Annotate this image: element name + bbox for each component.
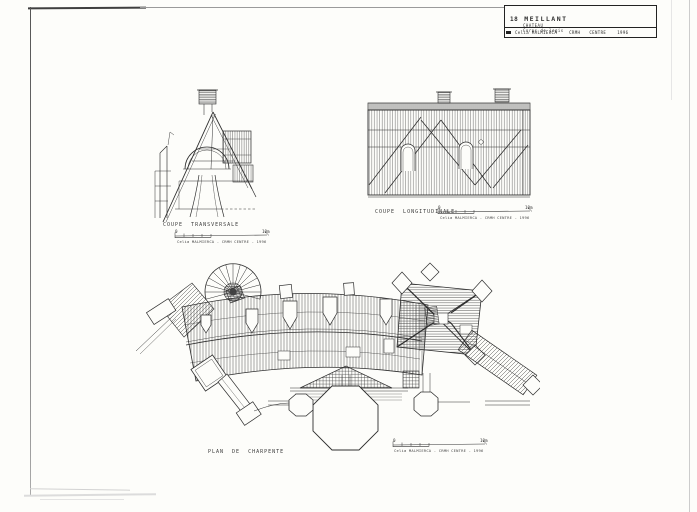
sheet-frame-left <box>30 7 31 496</box>
title-block: 18MEILLANT CHATEAU Corps de logis Celia … <box>504 5 657 38</box>
title-block-credit-row: Celia MALMIERCA CRMH CENTRE 1996 <box>505 27 656 37</box>
year: 1996 <box>617 30 628 35</box>
credit-line-plan: Celia MALMIERCA - CRMH CENTRE - 1996 <box>394 448 484 453</box>
southeast-wing <box>458 330 540 395</box>
region: CENTRE <box>589 30 606 35</box>
scale-max-label: 10m <box>525 205 533 210</box>
scale-max-label: 10m <box>480 438 488 443</box>
coupe-longitudinale-drawing <box>363 85 538 205</box>
plan-de-charpente-label: PLAN DE CHARPENTE <box>208 449 284 455</box>
scanned-drawing-sheet: 18MEILLANT CHATEAU Corps de logis Celia … <box>0 0 697 512</box>
scale-bar-line <box>438 208 532 215</box>
scale-bar-line <box>393 441 487 448</box>
title-block-main: 18MEILLANT <box>505 6 656 24</box>
coupe-transversale-drawing <box>135 85 275 240</box>
scan-edge-line <box>689 0 690 512</box>
sheet-frame-top-dark <box>28 7 146 10</box>
stamp-mark <box>506 31 511 34</box>
sheet-number: 18 <box>510 16 518 23</box>
plan-de-charpente-drawing <box>130 255 540 460</box>
scale-zero-label: 0 <box>393 438 396 443</box>
chimney <box>197 90 218 115</box>
scan-edge-line-faint <box>671 0 672 100</box>
monument-name: MEILLANT <box>524 15 567 23</box>
scale-bar-line <box>175 232 269 239</box>
author-name: Celia MALMIERCA <box>515 30 557 35</box>
scale-max-label: 10m <box>262 229 270 234</box>
credit-line-longitudinale: Celia MALMIERCA - CRMH CENTRE - 1996 <box>440 215 530 220</box>
scale-zero-label: 0 <box>175 229 178 234</box>
scan-smudge <box>24 493 156 497</box>
roof-chimneys <box>436 89 511 103</box>
ridge-batten-band <box>368 103 530 110</box>
credit-line-transversale: Celia MALMIERCA - CRMH CENTRE - 1996 <box>177 239 267 244</box>
organisation: CRMH <box>569 30 580 35</box>
scale-zero-label: 0 <box>438 205 441 210</box>
battened-structure <box>223 131 253 182</box>
scan-smudge <box>30 488 130 490</box>
scan-smudge <box>40 499 124 500</box>
